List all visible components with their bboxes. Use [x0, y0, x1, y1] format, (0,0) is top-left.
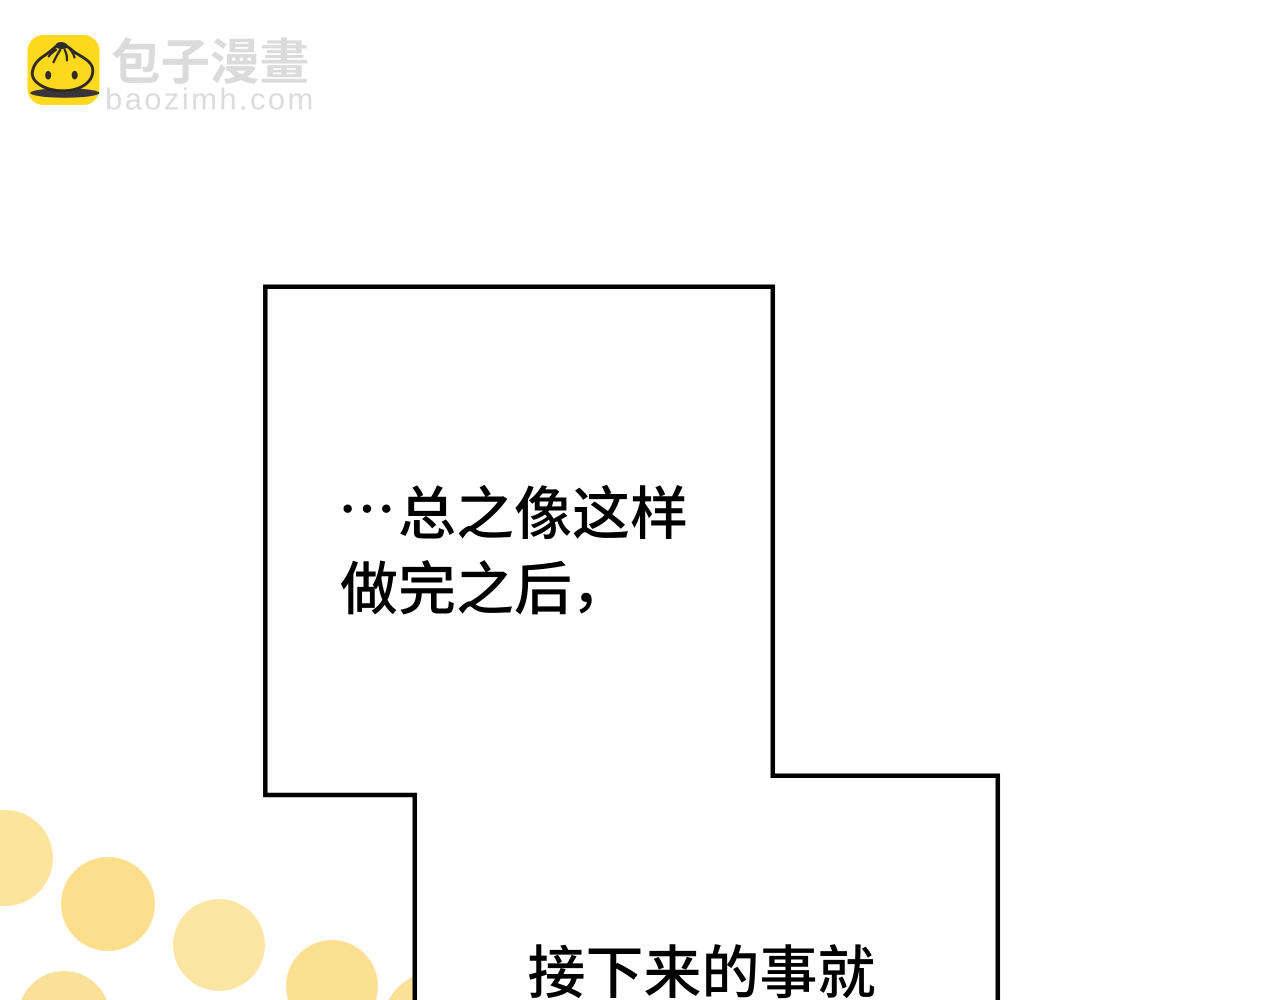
svg-text:baozimh.com: baozimh.com — [105, 82, 316, 117]
